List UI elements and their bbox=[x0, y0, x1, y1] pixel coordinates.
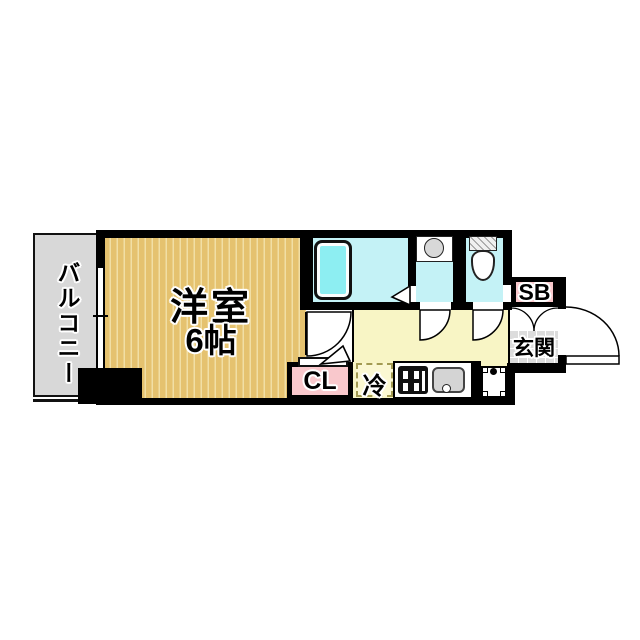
doorframe-strip-right bbox=[352, 310, 354, 362]
wall-under-bath bbox=[306, 302, 420, 310]
wall-bath-washroom bbox=[408, 238, 416, 286]
sink-drain bbox=[442, 384, 451, 393]
wall-between-doors bbox=[451, 302, 473, 310]
window bbox=[96, 268, 105, 368]
entrance-door-leaf bbox=[566, 356, 619, 364]
bathtub bbox=[314, 240, 352, 300]
pan-corner bbox=[500, 367, 506, 373]
closet-label: CL bbox=[287, 367, 353, 396]
floor-plan: バルコニー 洋室 6帖 CL 冷 SB 玄関 bbox=[0, 0, 640, 640]
entrance-door-swing bbox=[566, 307, 619, 356]
pan-corner bbox=[482, 367, 488, 373]
pillar bbox=[78, 368, 142, 404]
entrance-upper-area bbox=[509, 307, 558, 332]
wall-right-above-door bbox=[558, 285, 566, 309]
main-room-size-label: 6帖 bbox=[110, 314, 312, 362]
pan-corner bbox=[500, 391, 506, 397]
window-mullion bbox=[93, 315, 108, 317]
wall-washroom-toilet bbox=[453, 238, 466, 302]
balcony-label: バルコニー bbox=[48, 248, 86, 398]
washbasin-bowl bbox=[424, 238, 444, 258]
entrance-label: 玄関 bbox=[503, 332, 565, 362]
doorway-strip bbox=[306, 310, 352, 362]
refrigerator-label: 冷 bbox=[356, 366, 393, 401]
gas-stove bbox=[398, 366, 428, 394]
wall-left-upper bbox=[96, 230, 105, 270]
shoe-box-label: SB bbox=[511, 279, 558, 306]
pan-corner bbox=[482, 391, 488, 397]
pan-faucet bbox=[490, 368, 497, 375]
toilet-tank bbox=[469, 236, 497, 251]
wall-entrance-bottom bbox=[507, 363, 566, 373]
